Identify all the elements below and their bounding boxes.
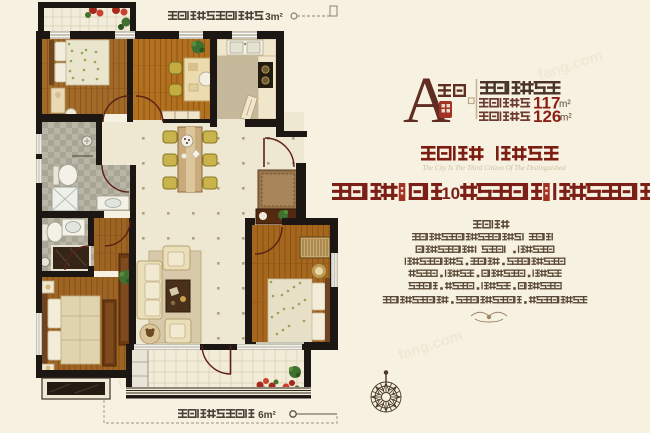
svg-text::: : — [528, 99, 531, 110]
svg-text:: 6m²: : 6m² — [252, 410, 277, 421]
svg-text:126: 126 — [533, 107, 561, 126]
svg-text::: : — [528, 113, 531, 124]
svg-text:A: A — [403, 64, 451, 137]
svg-text:m²: m² — [560, 113, 572, 124]
svg-text:The City Is The Third Citizen: The City Is The Third Citizen Of The Dis… — [422, 164, 566, 172]
svg-text:: 3m²: : 3m² — [259, 12, 284, 23]
svg-text:10: 10 — [441, 184, 460, 203]
